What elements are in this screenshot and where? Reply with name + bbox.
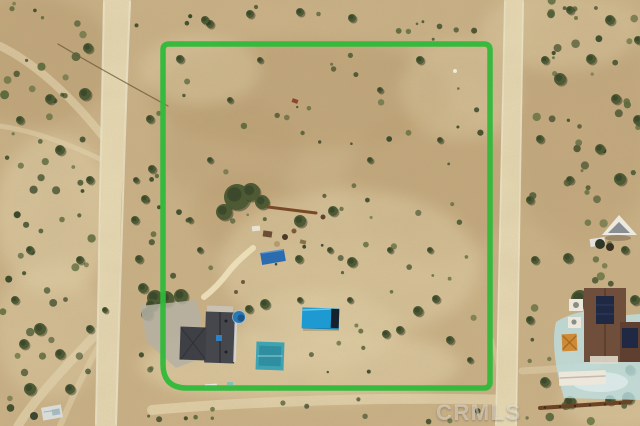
aerial-photo: CRMLS <box>0 0 640 426</box>
crmls-watermark: CRMLS <box>436 400 522 426</box>
aerial-photo-canvas <box>0 0 640 426</box>
